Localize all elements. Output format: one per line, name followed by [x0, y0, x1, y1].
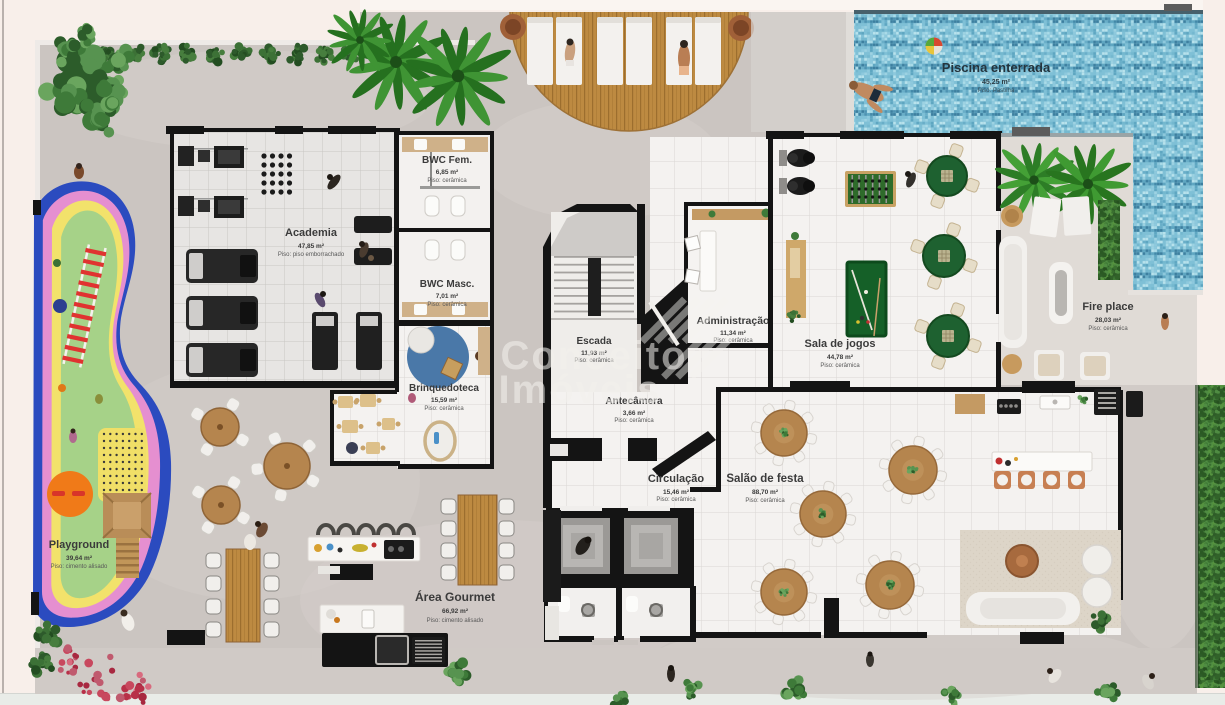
- svg-text:Piso: cerâmica: Piso: cerâmica: [713, 338, 753, 344]
- svg-text:7,01 m²: 7,01 m²: [436, 293, 459, 300]
- svg-text:Piso: cerâmica: Piso: cerâmica: [614, 418, 654, 424]
- svg-text:66,92 m²: 66,92 m²: [442, 608, 469, 615]
- svg-text:Piso: piso emborrachado: Piso: piso emborrachado: [278, 252, 345, 258]
- svg-text:Piso: cimento alisado: Piso: cimento alisado: [427, 618, 484, 624]
- svg-text:44,78 m²: 44,78 m²: [827, 354, 854, 361]
- svg-text:11,34 m²: 11,34 m²: [720, 330, 746, 337]
- svg-text:6,85 m²: 6,85 m²: [436, 169, 459, 176]
- svg-text:Área Gourmet: Área Gourmet: [415, 589, 495, 604]
- svg-text:Piso: cerâmica: Piso: cerâmica: [656, 497, 696, 503]
- svg-text:BWC Masc.: BWC Masc.: [420, 279, 475, 290]
- svg-text:88,70 m²: 88,70 m²: [752, 489, 779, 496]
- svg-text:Piso: cerâmica: Piso: cerâmica: [820, 363, 860, 369]
- svg-text:Piso: cerâmica: Piso: cerâmica: [424, 406, 464, 412]
- svg-text:28,03 m²: 28,03 m²: [1095, 317, 1122, 324]
- svg-text:Piso: cerâmica: Piso: cerâmica: [1088, 326, 1128, 332]
- svg-text:39,64 m²: 39,64 m²: [66, 555, 93, 562]
- svg-text:Salão de festa: Salão de festa: [726, 473, 804, 485]
- svg-text:Circulação: Circulação: [648, 473, 705, 485]
- svg-text:Piso: cimento alisado: Piso: cimento alisado: [51, 564, 108, 570]
- svg-text:45,25 m²: 45,25 m²: [982, 79, 1011, 86]
- svg-text:Piscina enterrada: Piscina enterrada: [942, 60, 1051, 75]
- svg-text:Piso: cerâmica: Piso: cerâmica: [427, 178, 467, 184]
- svg-text:Sala de jogos: Sala de jogos: [805, 338, 876, 350]
- svg-text:BWC Fem.: BWC Fem.: [422, 155, 472, 166]
- svg-text:Imóveis: Imóveis: [499, 368, 662, 412]
- svg-text:Brinquedoteca: Brinquedoteca: [409, 383, 479, 394]
- svg-text:Piso: Pastilha: Piso: Pastilha: [978, 88, 1015, 94]
- svg-text:Fire place: Fire place: [1082, 301, 1133, 313]
- svg-text:Piso: cerâmica: Piso: cerâmica: [745, 498, 785, 504]
- svg-text:Piso: cerâmica: Piso: cerâmica: [427, 302, 467, 308]
- svg-text:47,85 m²: 47,85 m²: [298, 243, 325, 250]
- svg-text:15,59 m²: 15,59 m²: [431, 397, 458, 404]
- svg-text:Playground: Playground: [49, 539, 110, 551]
- svg-text:Academia: Academia: [285, 227, 338, 239]
- svg-text:15,46 m²: 15,46 m²: [663, 489, 690, 496]
